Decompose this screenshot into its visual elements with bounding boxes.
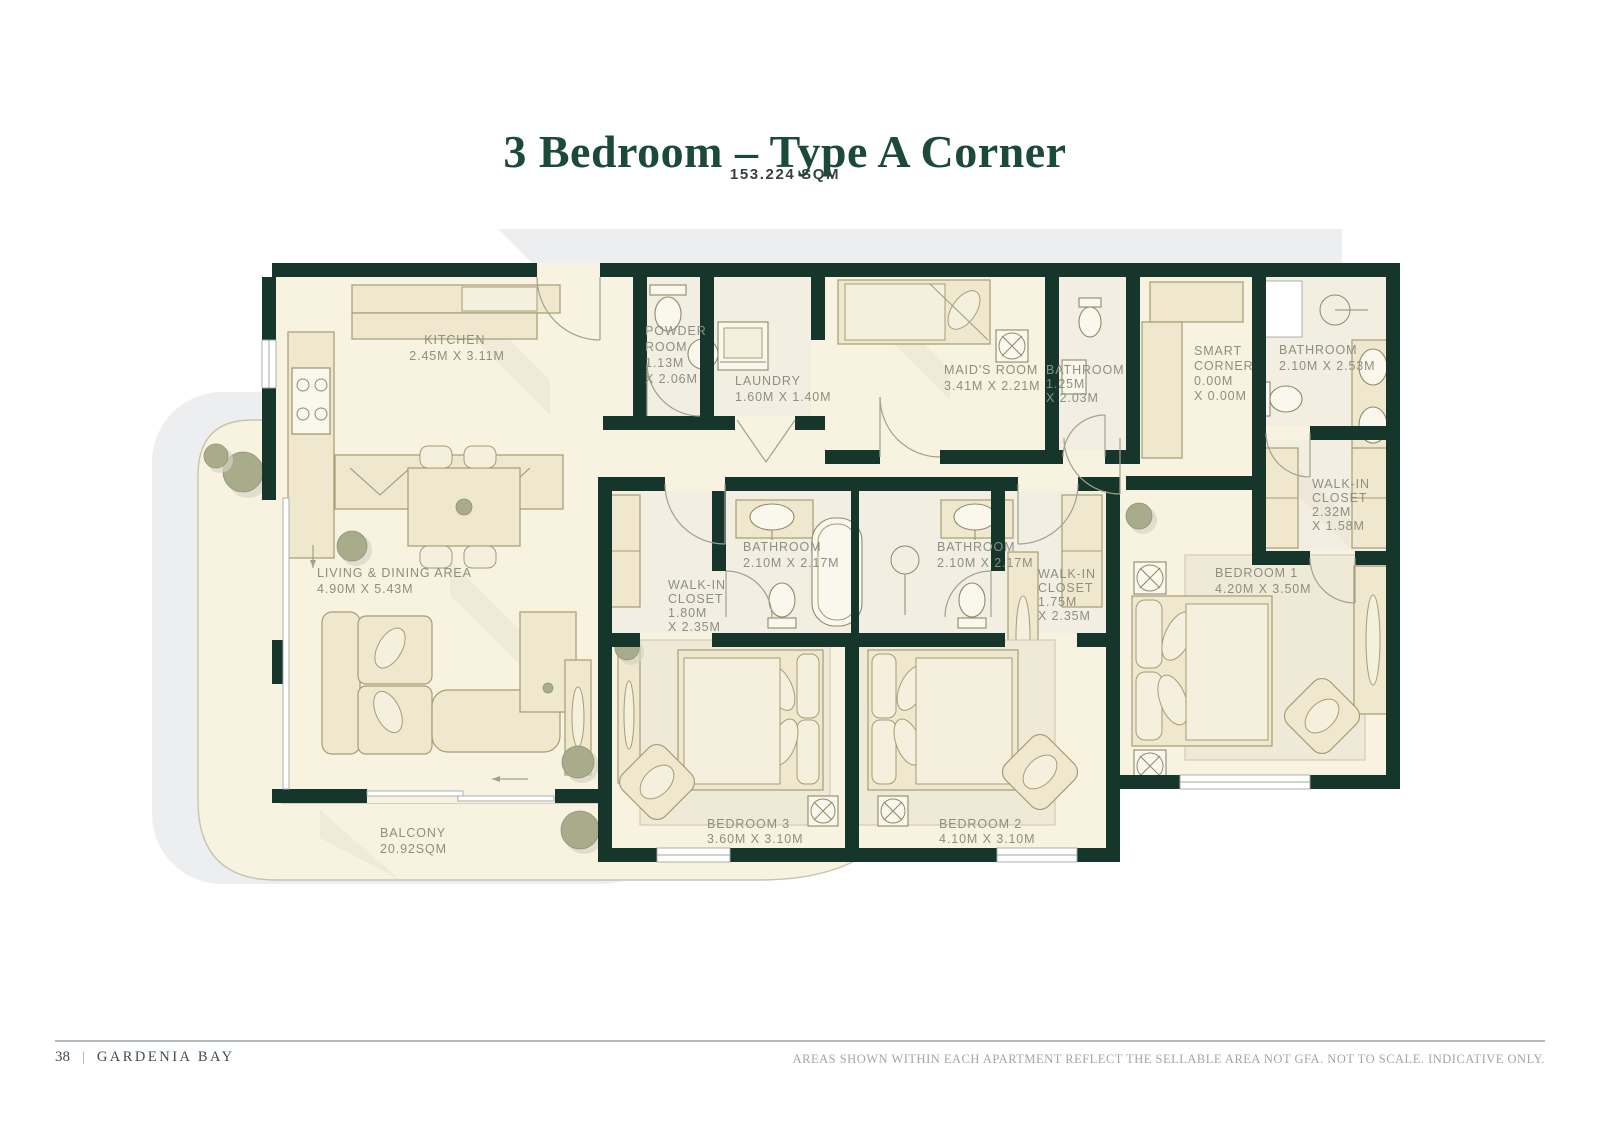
toilet-bowl bbox=[959, 583, 985, 617]
bedroom-2-furniture bbox=[855, 640, 1082, 826]
footer-divider bbox=[55, 1040, 1545, 1042]
stove bbox=[292, 368, 330, 434]
sliding-door-panel bbox=[367, 791, 463, 796]
laundry-appliances bbox=[718, 322, 768, 370]
unit-area: 153.224 SQM bbox=[0, 166, 1570, 183]
toilet-tank bbox=[958, 618, 986, 628]
bedroom-3-furniture bbox=[615, 640, 838, 826]
balcony-glazing bbox=[283, 498, 289, 789]
toilet-bowl bbox=[769, 583, 795, 617]
toilet-tank bbox=[1079, 298, 1101, 307]
brochure-page: 3 Bedroom – Type A Corner 153.224 SQM bbox=[0, 0, 1600, 1131]
toilet-bowl bbox=[1270, 386, 1302, 412]
toilet-bowl bbox=[1079, 307, 1101, 337]
floor-plan: KITCHEN 2.45M X 3.11M POWDER ROOM 1.13M … bbox=[140, 215, 1450, 915]
sliding-door-panel bbox=[458, 796, 554, 801]
bedroom-3-label: BEDROOM 3 3.60M X 3.10M bbox=[707, 817, 803, 846]
brand-name: GARDENIA BAY bbox=[97, 1049, 235, 1066]
footer-left: 38 | GARDENIA BAY bbox=[55, 1049, 235, 1066]
bedroom-2-label: BEDROOM 2 4.10M X 3.10M bbox=[939, 817, 1035, 846]
footer-separator: | bbox=[82, 1050, 85, 1066]
footer-disclaimer: AREAS SHOWN WITHIN EACH APARTMENT REFLEC… bbox=[793, 1052, 1545, 1067]
toilet-tank bbox=[768, 618, 796, 628]
toilet-tank bbox=[650, 285, 686, 295]
page-number: 38 bbox=[55, 1049, 70, 1066]
